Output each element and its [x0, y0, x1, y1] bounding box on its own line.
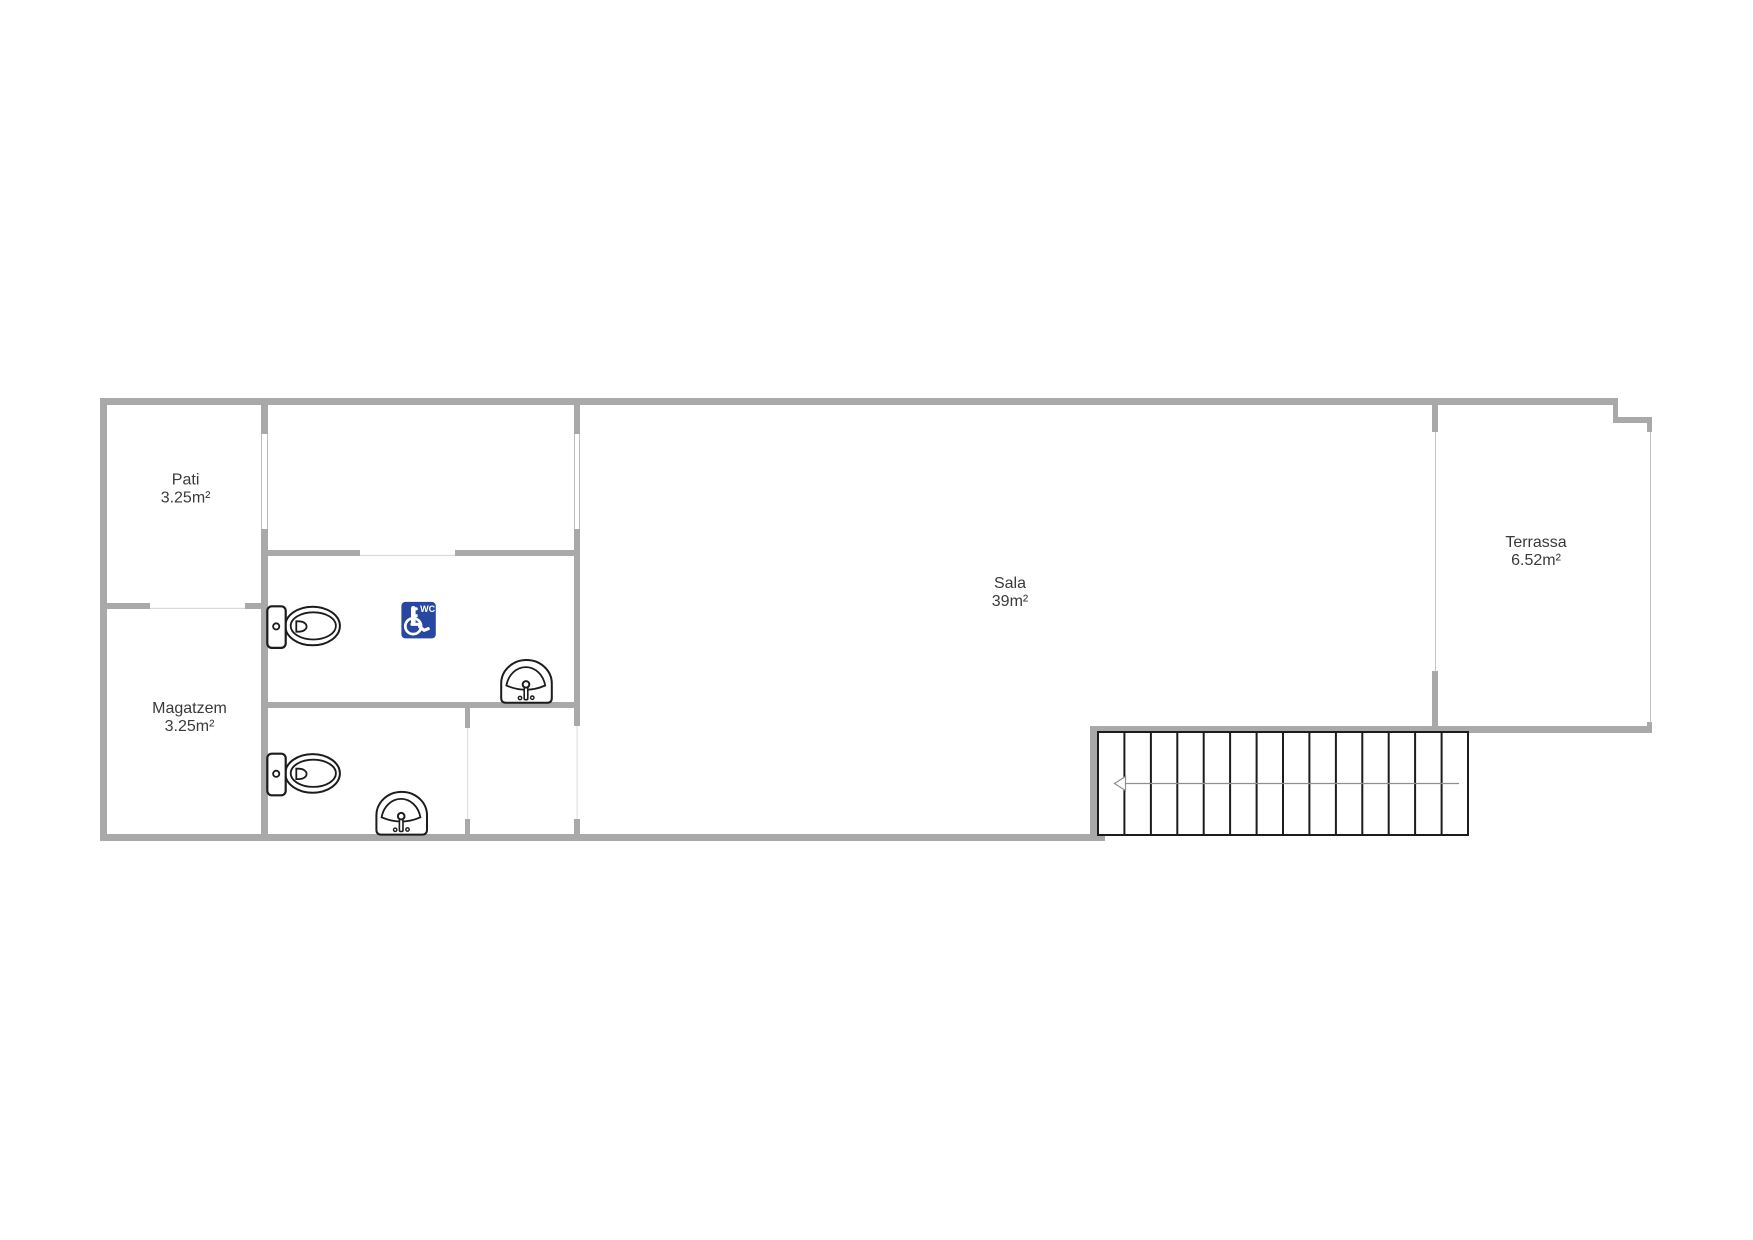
svg-text:6.52m²: 6.52m²	[1511, 552, 1561, 569]
svg-text:Pati: Pati	[172, 472, 200, 489]
svg-text:3.25m²: 3.25m²	[165, 718, 215, 735]
svg-text:3.25m²: 3.25m²	[161, 490, 211, 507]
svg-text:Magatzem: Magatzem	[152, 700, 227, 717]
svg-text:39m²: 39m²	[992, 593, 1029, 610]
svg-text:WC: WC	[420, 604, 435, 614]
svg-text:Terrassa: Terrassa	[1505, 534, 1566, 551]
svg-text:Sala: Sala	[994, 575, 1026, 592]
